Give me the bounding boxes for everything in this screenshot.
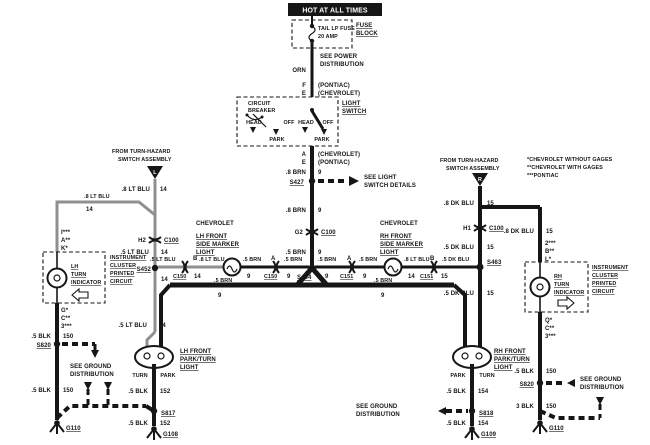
light-switch: CIRCUIT BREAKER HEAD OFF HEAD OFF PARK P… <box>237 97 366 166</box>
see-light-1: SEE LIGHT <box>364 175 397 181</box>
right-instrument-cluster: 2*** B** L* RH TURN INDICATOR INSTRUMENT… <box>514 241 629 434</box>
c100-left-label: C100 <box>164 238 179 244</box>
off1-label: OFF <box>283 120 295 126</box>
g2-pin: G2 <box>295 230 304 236</box>
lh-park-filament <box>158 353 164 359</box>
s464-diag-right <box>312 268 326 284</box>
rcluster-pin-1: 2*** <box>545 241 556 247</box>
contact-arrow-head2 <box>302 127 308 133</box>
lh-turn-filament <box>144 353 150 359</box>
see-ground-left-1: SEE GROUND <box>70 364 112 370</box>
lh-light-blk-2: .5 BLK <box>128 421 148 427</box>
rmarker-dkblu-label: .5 DK BLU <box>442 257 469 263</box>
ltblu8-label-2: .8 LT BLU <box>84 194 110 200</box>
s817-label: S817 <box>161 411 176 417</box>
lmarker-name-2: SIDE MARKER <box>196 242 240 248</box>
rmarker-name-3: LIGHT <box>380 250 399 256</box>
rmarker-9-1: 9 <box>325 274 329 280</box>
rmarker-9-2: 9 <box>363 274 367 280</box>
lmarker-brn-1: .5 BRN <box>243 257 261 263</box>
fuse-block-label-1: FUSE <box>356 23 372 29</box>
rmarker-name-2: SIDE MARKER <box>380 242 424 248</box>
s452-ckt: 14 <box>161 277 168 283</box>
rh-light-154-1: 154 <box>478 389 489 395</box>
lh-turn-label: TURN <box>132 373 147 379</box>
lh-turn-indicator-bulb-icon <box>48 269 67 288</box>
rcluster-blk-2: 3 BLK <box>516 404 534 410</box>
rh-light-blk-1: .5 BLK <box>446 389 466 395</box>
lcluster-text-4: CIRCUIT <box>110 279 133 285</box>
see-ground-center-1: SEE GROUND <box>356 404 398 410</box>
rmarker-pin-b: B <box>430 256 435 262</box>
dkblu8-ckt-2: 15 <box>546 229 553 235</box>
rcluster-pin-6: 3*** <box>545 334 556 340</box>
rmarker-brn-1: .5 BRN <box>318 257 336 263</box>
rcluster-text-3: PRINTED <box>592 281 616 287</box>
h1-pin: H1 <box>463 226 471 232</box>
ground-dist-arrow-right <box>567 379 575 387</box>
ltblu8-label-1: .8 LT BLU <box>122 187 150 193</box>
lh-park-label: PARK <box>160 373 175 379</box>
lh-ind-1: LH <box>71 264 78 270</box>
hot-at-all-times-banner: HOT AT ALL TIMES <box>288 3 382 16</box>
rcluster-150-1: 150 <box>546 369 557 375</box>
contact-arrow-park2 <box>321 129 327 135</box>
s427-label: S427 <box>290 180 305 186</box>
rh-turn-filament <box>476 353 482 359</box>
lh-bulb-filament <box>54 275 60 281</box>
pin-f: F <box>302 83 306 89</box>
rcluster-pin-4: Q* <box>545 318 553 324</box>
lh-side-marker-bulb-icon <box>224 259 241 276</box>
pin-a-make: (CHEVROLET) <box>318 152 360 158</box>
from-rh-2: SWITCH ASSEMBLY <box>446 166 500 172</box>
rh-ind-1: RH <box>554 274 562 280</box>
brn-park-drop-left <box>161 285 170 347</box>
rh-marker-filament <box>388 266 398 272</box>
ground-symbol-g108 <box>147 426 161 440</box>
pin-f-make: (PONTIAC) <box>318 83 350 89</box>
lmarker-pin-a: A <box>271 256 276 262</box>
brn-ckt-1: 9 <box>318 170 322 176</box>
g109-label: G109 <box>481 432 497 438</box>
dkblu5-ckt-up: 15 <box>487 245 494 251</box>
lcluster-text-2: CLUSTER <box>110 263 136 269</box>
lmarker-9-1: 9 <box>247 274 251 280</box>
rh-turn-label: TURN <box>479 373 494 379</box>
rh-turn-indicator-bulb-icon <box>531 278 550 297</box>
lmarker-9-2: 9 <box>287 274 291 280</box>
lmarker-name-3: LIGHT <box>196 250 215 256</box>
see-power-1: SEE POWER <box>320 54 358 60</box>
breaker-dot-1 <box>246 114 249 117</box>
off2-label: OFF <box>322 120 334 126</box>
contact-arrow-park1 <box>273 129 279 135</box>
ltblu-to-lamp <box>147 332 155 347</box>
rmarker-ltblu-label: .8 LT BLU <box>404 257 430 263</box>
rh-park-filament <box>462 353 468 359</box>
rh-side-marker-bulb-icon <box>385 259 402 276</box>
brn-label-1: .8 BRN <box>286 170 306 176</box>
pin-e-bottom: E <box>302 160 306 166</box>
center-gnd-arrow <box>438 407 446 415</box>
pin-e-top: E <box>302 91 306 97</box>
fuse-element-icon <box>309 26 315 41</box>
dkblu5-label-up: .5 DK BLU <box>444 245 474 251</box>
ground-dist-arrow-stub-1 <box>84 382 92 390</box>
wiring-diagram-canvas: HOT AT ALL TIMES TAIL LP FUSE 20 AMP FUS… <box>0 0 650 445</box>
lmarker-ckt-14: 14 <box>194 274 201 280</box>
park2-label: PARK <box>314 137 329 143</box>
pin-e-bottom-make: (PONTIAC) <box>318 160 350 166</box>
see-light-2: SWITCH DETAILS <box>364 183 416 189</box>
rmarker-name-1: RH FRONT <box>380 234 412 240</box>
breaker-dot-2 <box>261 116 264 119</box>
light-switch-label-1: LIGHT <box>342 101 361 107</box>
ground-dist-arrow-left <box>91 350 99 358</box>
c150-b-label: C150 <box>173 274 186 280</box>
contact-arrow-head1 <box>250 127 256 133</box>
ltblu5-label-2: .5 LT BLU <box>119 323 147 329</box>
pin-a: A <box>302 152 307 158</box>
parkfeed-9-left: 9 <box>218 293 222 299</box>
see-power-2: DISTRIBUTION <box>320 62 364 68</box>
dkblu5-ckt-dn: 15 <box>487 291 494 297</box>
rmarker-ckt-15: 15 <box>441 274 448 280</box>
s820-left-label: S820 <box>37 343 52 349</box>
fuse-terminal-bottom <box>310 39 314 43</box>
brn-ckt-3: 9 <box>318 250 322 256</box>
lcluster-pin-1: I*** <box>61 230 71 236</box>
c151-a-label: C151 <box>340 274 353 280</box>
rcluster-gnd-chain <box>540 411 600 418</box>
lh-light-152-2: 152 <box>160 421 171 427</box>
legend-line-1: *CHEVROLET WITHOUT GAGES <box>527 157 613 163</box>
from-lh-2: SWITCH ASSEMBLY <box>118 157 172 163</box>
g110-right-label: G110 <box>549 426 564 432</box>
head2-label: HEAD <box>298 120 314 126</box>
splice-s818 <box>469 408 475 414</box>
rh-park-turn-light: PARK TURN RH FRONT PARK/TURN LIGHT .5 BL… <box>446 346 529 440</box>
rmarker-pin-a: A <box>347 256 352 262</box>
center-ground-distribution: SEE GROUND DISTRIBUTION <box>356 404 468 418</box>
light-switch-label-2: SWITCH <box>342 109 366 115</box>
lh-light-name-1: LH FRONT <box>180 349 211 355</box>
fuse-block: TAIL LP FUSE 20 AMP FUSE BLOCK <box>292 16 378 48</box>
lcluster-pin-5: C** <box>61 316 71 322</box>
lh-light-152-1: 152 <box>160 389 171 395</box>
lcluster-text-1: INSTRUMENT <box>110 255 147 261</box>
lcluster-150-1: 150 <box>63 334 74 340</box>
s820-right-label: S820 <box>520 382 535 388</box>
s452-label: S452 <box>137 267 152 273</box>
rcluster-text-4: CIRCUIT <box>592 289 615 295</box>
ltblu-cluster-branch <box>57 202 155 252</box>
lmarker-pin-b: B <box>193 256 198 262</box>
lmarker-brn-2: .5 BRN <box>284 257 302 263</box>
fuse-rating: 20 AMP <box>318 34 338 40</box>
lh-ind-3: INDICATOR <box>71 280 101 286</box>
lh-park-turn-light: TURN PARK LH FRONT PARK/TURN LIGHT .5 BL… <box>57 346 216 440</box>
lmarker-wireb-label: .5 LT BLU <box>150 257 176 263</box>
park1-label: PARK <box>269 137 284 143</box>
rh-light-blk-2: .5 BLK <box>446 421 466 427</box>
rcluster-pin-5: C** <box>545 326 555 332</box>
lcluster-150-2: 150 <box>63 388 74 394</box>
triangle-l-letter: L <box>153 170 157 176</box>
rh-light-name-2: PARK/TURN <box>494 357 530 363</box>
splice-s820-left <box>54 341 60 347</box>
splice-s820-right <box>537 380 543 386</box>
triangle-r-letter: R <box>478 177 482 183</box>
lh-ground-chain <box>57 406 146 418</box>
lmarker-wireb2-label: .8 LT BLU <box>199 257 225 263</box>
c100-right-label: C100 <box>489 226 504 232</box>
rcluster-blk-1: .5 BLK <box>514 369 534 375</box>
legend-line-3: ***PONTIAC <box>527 173 559 179</box>
brn-ckt-2: 9 <box>318 208 322 214</box>
lcluster-blk-1: .5 BLK <box>31 334 51 340</box>
lh-light-name-2: PARK/TURN <box>180 357 216 363</box>
rcluster-pin-2: B** <box>545 249 555 255</box>
pin-e-top-make: (CHEVROLET) <box>318 91 360 97</box>
ground-symbol-g110-left <box>50 420 64 434</box>
legend: *CHEVROLET WITHOUT GAGES **CHEVROLET WIT… <box>527 157 613 179</box>
see-light-switch-arrow-head <box>349 176 359 186</box>
rcluster-text-1: INSTRUMENT <box>592 265 629 271</box>
circuit-breaker-2: BREAKER <box>248 108 275 114</box>
rmarker-make: CHEVROLET <box>380 221 418 227</box>
ltblu5-ckt-1: 14 <box>161 250 168 256</box>
rmarker-brn-2: .5 BRN <box>359 257 377 263</box>
rh-turn-arrow-icon <box>558 297 574 309</box>
brn-label-2: .8 BRN <box>286 208 306 214</box>
lmarker-name-1: LH FRONT <box>196 234 227 240</box>
rh-light-name-1: RH FRONT <box>494 349 526 355</box>
lh-ind-2: TURN <box>71 272 86 278</box>
rh-bulb-filament <box>537 284 543 290</box>
fuse-block-label-2: BLOCK <box>356 31 378 37</box>
head1-label: HEAD <box>246 120 262 126</box>
ground-symbol-g110-right <box>533 420 547 434</box>
dkblu5-label-dn: .5 DK BLU <box>444 291 474 297</box>
c100-center-label: C100 <box>321 230 336 236</box>
lh-light-name-3: LIGHT <box>180 365 199 371</box>
s818-label: S818 <box>479 411 494 417</box>
see-ground-left-2: DISTRIBUTION <box>70 372 114 378</box>
from-lh-1: FROM TURN-HAZARD <box>112 149 171 155</box>
power-distribution-feed: SEE POWER DISTRIBUTION ORN F (PONTIAC) E… <box>292 43 364 97</box>
g108-label: G108 <box>163 432 179 438</box>
dkblu8-label-2: .8 DK BLU <box>504 229 534 235</box>
c151-b-label: C151 <box>420 274 433 280</box>
see-ground-center-2: DISTRIBUTION <box>356 412 400 418</box>
rcluster-150-2: 150 <box>546 404 557 410</box>
lcluster-pin-4: G* <box>61 308 69 314</box>
rmarker-ckt-14: 14 <box>408 274 415 280</box>
lcluster-text-3: PRINTED <box>110 271 134 277</box>
c150-a-label: C150 <box>264 274 277 280</box>
rh-light-154-2: 154 <box>478 421 489 427</box>
lcluster-pin-2: A** <box>61 238 71 244</box>
ground-dist-arrow-stub-2 <box>104 382 112 390</box>
lh-marker-filament <box>227 266 237 272</box>
s463-label: S463 <box>487 260 502 266</box>
orn-label: ORN <box>292 68 306 74</box>
fuse-name: TAIL LP FUSE <box>318 26 355 32</box>
ground-symbol-g109 <box>465 426 479 440</box>
splice-s452 <box>152 265 158 271</box>
rh-park-label: PARK <box>450 373 465 379</box>
wiring-diagram-page: HOT AT ALL TIMES TAIL LP FUSE 20 AMP FUS… <box>0 0 650 445</box>
rh-light-name-3: LIGHT <box>494 365 513 371</box>
ltblu8-ckt-1: 14 <box>160 187 167 193</box>
lcluster-pin-6: 3*** <box>61 324 72 330</box>
dkblu8-label-1: .8 DK BLU <box>444 201 474 207</box>
rh-ind-3: INDICATOR <box>554 290 584 296</box>
lcluster-pin-3: K* <box>61 246 68 252</box>
g110-left-label: G110 <box>66 426 81 432</box>
splice-s427 <box>309 178 315 184</box>
from-rh-1: FROM TURN-HAZARD <box>440 158 499 164</box>
see-ground-right-2: DISTRIBUTION <box>580 385 624 391</box>
lcluster-blk-2: .5 BLK <box>31 388 51 394</box>
banner-label: HOT AT ALL TIMES <box>302 8 368 15</box>
rh-ind-2: TURN <box>554 282 569 288</box>
rcluster-text-2: CLUSTER <box>592 273 618 279</box>
lh-turn-arrow-icon <box>72 289 88 301</box>
h2-pin: H2 <box>138 238 146 244</box>
lh-light-blk-1: .5 BLK <box>128 389 148 395</box>
right-turn-feed: FROM TURN-HAZARD SWITCH ASSEMBLY R .8 DK… <box>440 158 553 347</box>
splice-s463 <box>477 264 484 271</box>
legend-line-2: **CHEVROLET WITH GAGES <box>527 165 603 171</box>
parkfeed-brn-right: .5 BRN <box>374 278 392 284</box>
parkfeed-9-right: 9 <box>381 293 385 299</box>
brn-label-3: .5 BRN <box>286 250 306 256</box>
parkfeed-brn-left: .5 BRN <box>214 278 232 284</box>
see-ground-right-1: SEE GROUND <box>580 377 622 383</box>
circuit-breaker-1: CIRCUIT <box>248 101 271 107</box>
ground-dist-arrow-right-2 <box>596 397 604 405</box>
ltblu8-ckt-2: 14 <box>86 207 93 213</box>
lmarker-make: CHEVROLET <box>196 221 234 227</box>
